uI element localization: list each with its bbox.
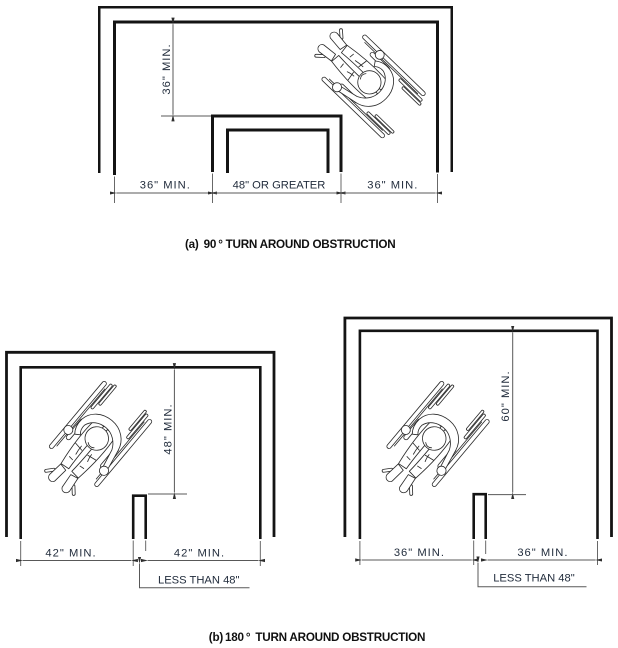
svg-text:36" MIN.: 36" MIN.: [367, 180, 418, 192]
svg-text:36" MIN.: 36" MIN.: [140, 180, 191, 192]
svg-text:42" MIN.: 42" MIN.: [45, 548, 96, 560]
svg-text:(a) 90 ° TURN AROUND OBSTRUCT: (a) 90 ° TURN AROUND OBSTRUCTION: [185, 238, 395, 251]
svg-text:36" MIN.: 36" MIN.: [517, 547, 568, 559]
svg-text:48" OR GREATER: 48" OR GREATER: [233, 180, 326, 192]
svg-text:60" MIN.: 60" MIN.: [500, 370, 512, 421]
svg-text:42" MIN.: 42" MIN.: [174, 548, 225, 560]
svg-text:36" MIN.: 36" MIN.: [161, 43, 173, 94]
svg-text:LESS THAN 48": LESS THAN 48": [493, 573, 575, 585]
svg-text:(b) 180 ° TURN AROUND OBSTRU: (b) 180 ° TURN AROUND OBSTRUCTION: [209, 631, 425, 644]
svg-text:LESS THAN 48": LESS THAN 48": [158, 574, 240, 586]
svg-text:36" MIN.: 36" MIN.: [394, 547, 445, 559]
svg-text:48" MIN.: 48" MIN.: [162, 403, 174, 454]
